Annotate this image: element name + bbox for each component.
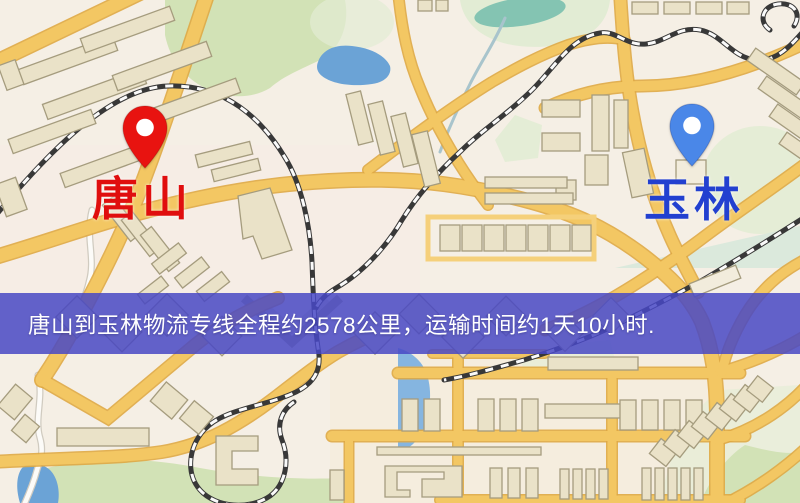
destination-label: 玉林 [609, 177, 779, 223]
route-info-text: 唐山到玉林物流专线全程约2578公里，运输时间约1天10小时. [0, 308, 655, 340]
location-pin-icon [669, 103, 715, 167]
origin-pin[interactable] [122, 105, 168, 169]
destination-pin[interactable] [669, 103, 715, 167]
location-pin-icon [122, 105, 168, 169]
route-info-banner: 唐山到玉林物流专线全程约2578公里，运输时间约1天10小时. [0, 293, 800, 354]
map-artwork [0, 0, 800, 503]
origin-label: 唐山 [57, 176, 227, 222]
map-canvas[interactable]: 唐山 玉林 唐山到玉林物流专线全程约2578公里，运输时间约1天10小时. [0, 0, 800, 503]
